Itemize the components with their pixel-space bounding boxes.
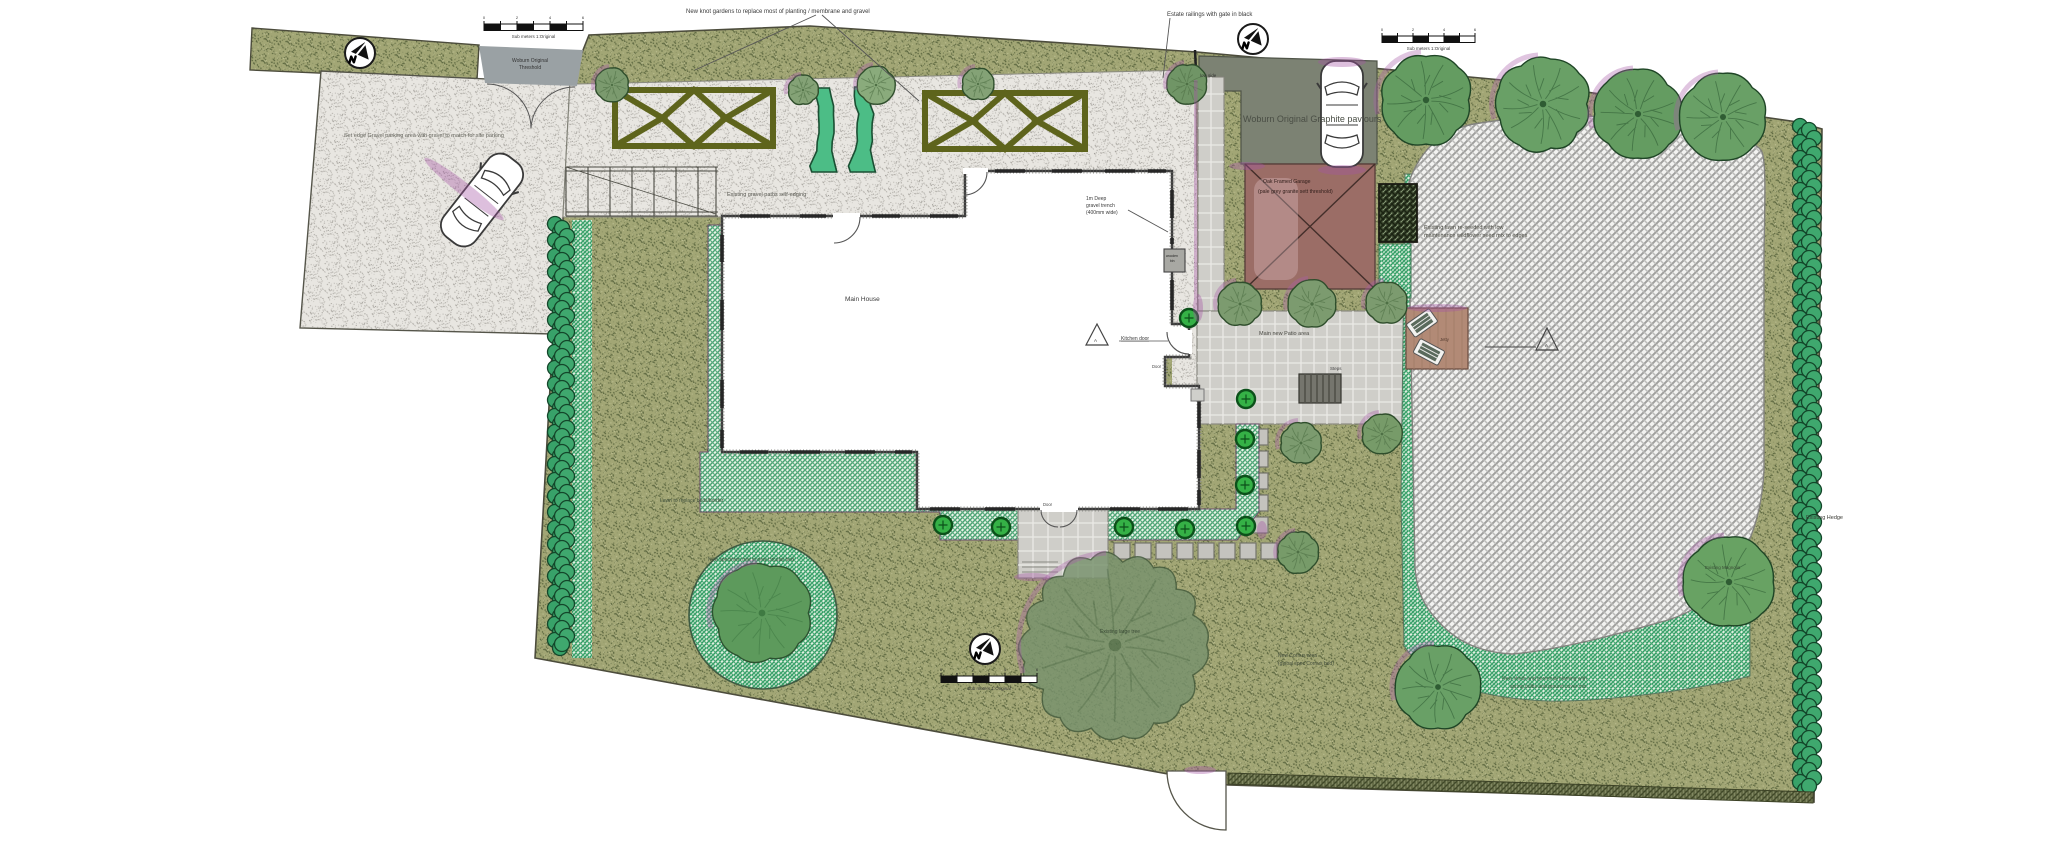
svg-text:Door: Door: [1152, 364, 1162, 369]
svg-text:Main House: Main House: [845, 296, 880, 303]
svg-text:low side: low side: [1200, 73, 1217, 78]
svg-text:Woburn Original Graphite pavio: Woburn Original Graphite paviours: [1243, 114, 1382, 124]
svg-text:Sub meters 1:Original: Sub meters 1:Original: [512, 34, 556, 39]
svg-text:Existing Magnolia: Existing Magnolia: [1705, 565, 1741, 570]
svg-text:1m Deep: 1m Deep: [1086, 196, 1107, 202]
svg-text:A: A: [1545, 343, 1548, 348]
svg-text:(400mm wide): (400mm wide): [1086, 210, 1118, 216]
svg-text:maintenance wildflower seed mi: maintenance wildflower seed mix to edges: [1424, 233, 1528, 239]
svg-text:(global spec Cornus bed): (global spec Cornus bed): [1278, 661, 1334, 667]
svg-text:Sub meters 1:Original: Sub meters 1:Original: [967, 686, 1011, 691]
svg-text:bin: bin: [1170, 259, 1175, 263]
svg-text:Main new Patio area: Main new Patio area: [1259, 331, 1310, 337]
svg-text:Estate railings with gate in b: Estate railings with gate in black: [1167, 12, 1253, 18]
svg-text:Set edge Gravel parking area w: Set edge Gravel parking area with gravel…: [344, 133, 504, 139]
svg-text:Oak Framed Garage: Oak Framed Garage: [1263, 179, 1311, 185]
svg-text:Threshold: Threshold: [519, 65, 541, 71]
svg-text:Sub meters 1:Original: Sub meters 1:Original: [1407, 46, 1451, 51]
svg-text:Door: Door: [1043, 502, 1053, 507]
svg-text:gravel trench: gravel trench: [1086, 203, 1115, 209]
svg-text:A: A: [1094, 338, 1097, 343]
svg-text:New knot gardens to replace mo: New knot gardens to replace most of plan…: [686, 9, 870, 15]
svg-text:New Cornus area: New Cornus area: [1278, 653, 1317, 659]
svg-text:Jetty: Jetty: [1440, 337, 1450, 342]
svg-text:Steps: Steps: [1330, 366, 1342, 371]
svg-text:Existing large tree: Existing large tree: [1100, 629, 1140, 635]
svg-text:Lawn to replace beds/border: Lawn to replace beds/border: [660, 498, 724, 504]
svg-text:Woburn Original: Woburn Original: [512, 58, 548, 64]
svg-text:Existing Hedge: Existing Hedge: [1806, 515, 1843, 521]
svg-text:spring bulbs and ground cover: spring bulbs and ground cover mix: [1510, 684, 1587, 690]
svg-text:New shrub and perennial planti: New shrub and perennial planting with: [1502, 676, 1587, 682]
svg-text:Existing lawn re-seeded with l: Existing lawn re-seeded with low: [1424, 225, 1504, 231]
svg-text:wooden: wooden: [1166, 254, 1178, 258]
svg-text:Existing gravel paths self-ed: Existing gravel paths self-edging: [727, 192, 806, 198]
svg-text:(pale grey granite sett thresh: (pale grey granite sett threshold): [1258, 189, 1333, 195]
